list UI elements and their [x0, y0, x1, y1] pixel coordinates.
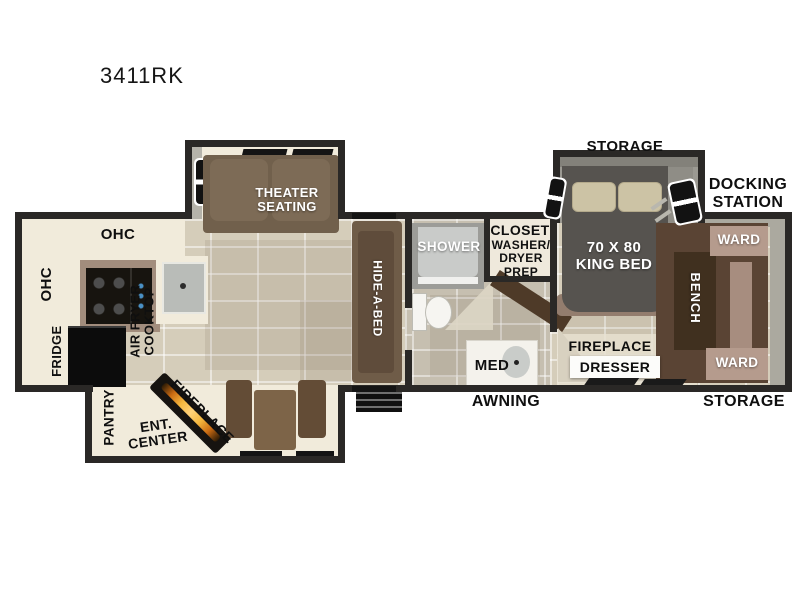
label-hide-a-bed: HIDE-A-BED [370, 244, 383, 354]
ward-divider [730, 262, 752, 348]
shower-threshold [418, 277, 478, 284]
label-docking-station: DOCKING STATION [700, 176, 796, 213]
wall-segment [338, 140, 345, 219]
pillow [572, 182, 616, 212]
wall-segment [15, 212, 191, 219]
wall-segment [85, 456, 345, 463]
faucet-icon [180, 283, 186, 289]
window [352, 213, 396, 219]
wall-segment [15, 212, 22, 392]
label-fridge: FRIDGE [50, 316, 64, 386]
label-king-bed: 70 X 80 KING BED [558, 240, 670, 273]
page-title: 3411RK [100, 64, 210, 88]
faucet-icon [514, 360, 519, 365]
dinette-table [254, 390, 296, 450]
label-med: MED [470, 358, 514, 375]
wall-segment [405, 350, 412, 392]
wall-segment [785, 212, 792, 392]
wall-face [770, 219, 785, 385]
wall-segment [85, 385, 92, 463]
entry-steps [356, 392, 402, 412]
wall-segment [185, 140, 192, 219]
dinette-chair [298, 380, 326, 438]
label-shower: SHOWER [412, 240, 486, 255]
label-fireplace-bedroom: FIREPLACE [566, 339, 654, 354]
label-awning: AWNING [456, 393, 556, 411]
floorplan-canvas: 3411RK [0, 0, 800, 600]
label-pantry: PANTRY [103, 372, 118, 462]
bath-door-gap [405, 308, 412, 350]
label-storage-top: STORAGE [573, 139, 677, 156]
label-air-fryer-cooktop: AIR FRYER COOKTOP [129, 266, 158, 376]
label-washer-dryer-prep: WASHER/ DRYER PREP [487, 239, 555, 279]
wall-segment [338, 385, 345, 463]
wall-segment [698, 212, 792, 219]
label-ward-top: WARD [710, 233, 768, 248]
label-ward-bottom: WARD [706, 356, 768, 371]
label-dresser: DRESSER [570, 360, 660, 375]
wall-segment [405, 212, 412, 308]
label-closet: CLOSET [487, 223, 553, 238]
wall-segment [405, 212, 557, 219]
toilet-bowl [425, 296, 452, 329]
label-ohc-left: OHC [39, 249, 56, 319]
label-theater-seating: THEATER SEATING [237, 186, 337, 215]
bedroom-door-gap [550, 332, 557, 385]
wall-segment [185, 140, 345, 147]
label-ohc-top: OHC [90, 227, 146, 244]
label-bench: BENCH [688, 243, 702, 353]
wall-segment [405, 385, 792, 392]
label-storage-bottom: STORAGE [690, 393, 798, 411]
